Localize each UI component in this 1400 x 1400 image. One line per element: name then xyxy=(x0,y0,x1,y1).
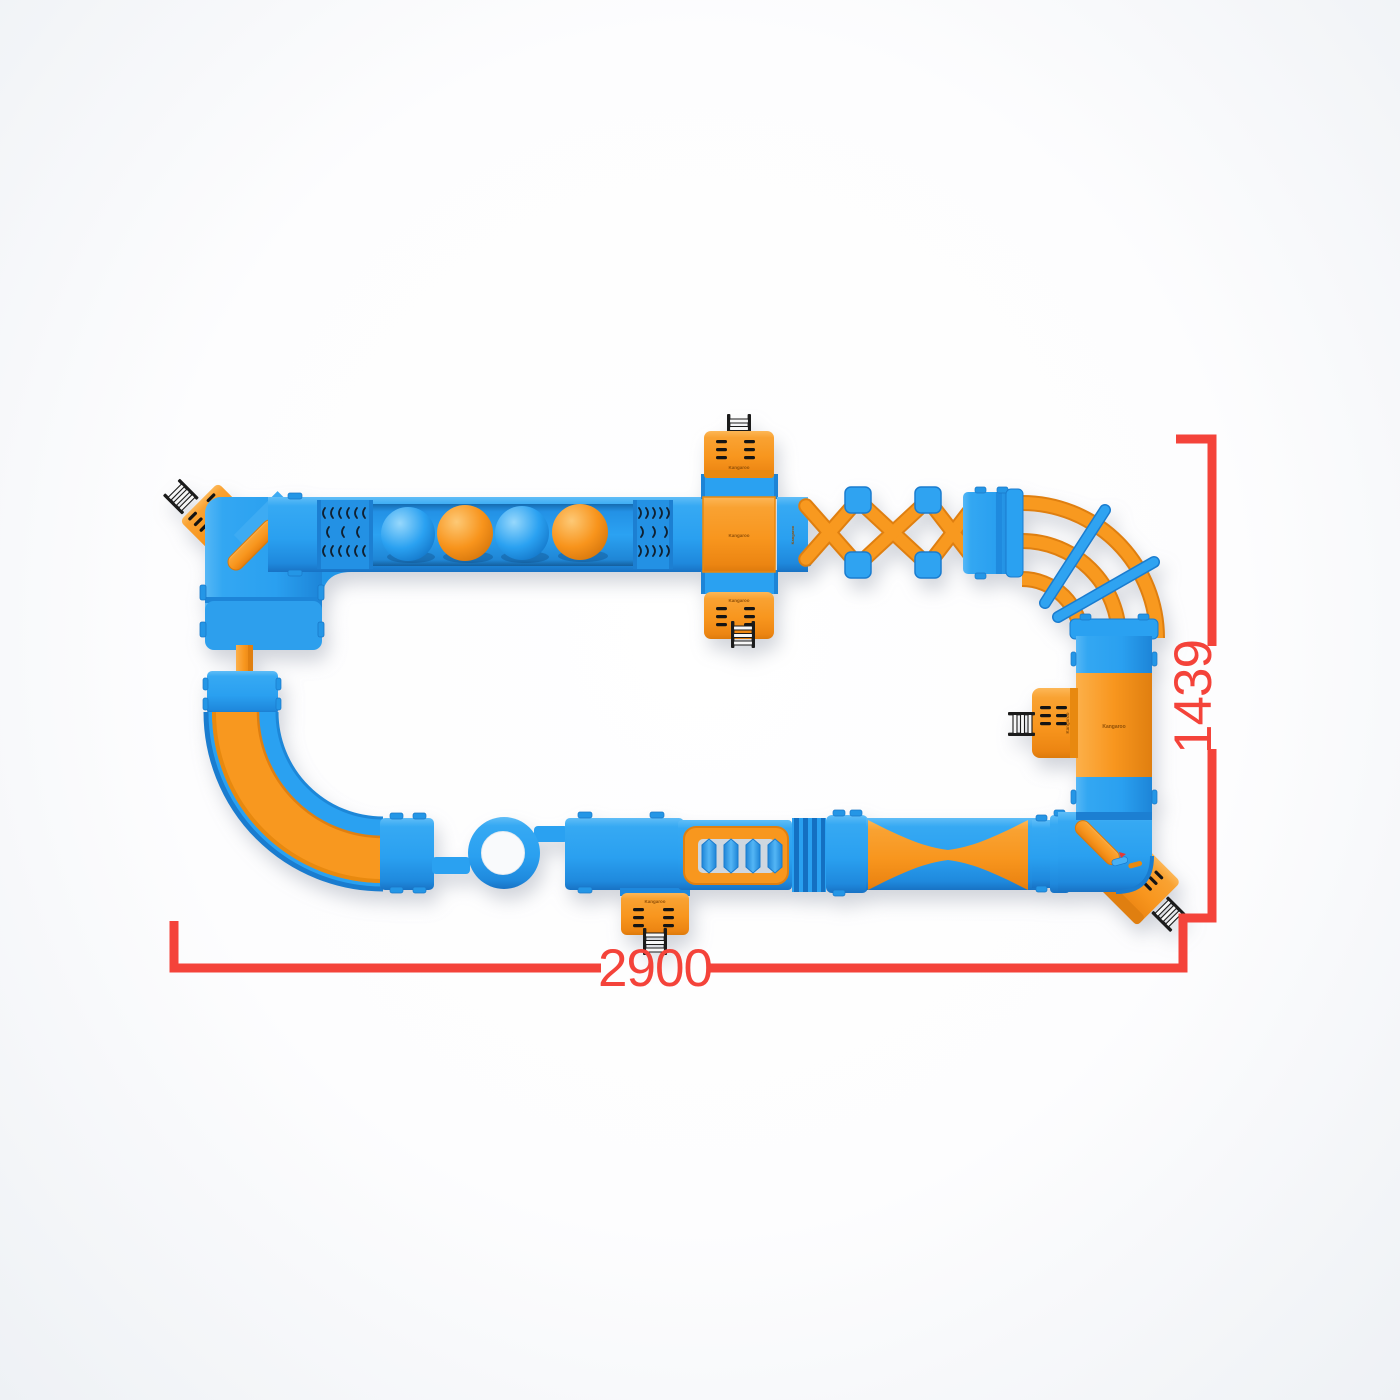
roller-icon xyxy=(746,839,760,873)
brand-logo: Kangaroo xyxy=(728,598,749,603)
height-dimension-label: 1439 xyxy=(1164,640,1223,754)
bottom-connector xyxy=(826,810,868,896)
anti-slip-marks-icon xyxy=(716,607,727,626)
bottom-left-block xyxy=(380,813,434,893)
ball-orange xyxy=(437,505,493,561)
anti-slip-marks-icon xyxy=(663,908,674,927)
roller-icon xyxy=(768,839,782,873)
tower-section-right: Kangaroo xyxy=(1070,614,1158,820)
step-pad xyxy=(915,552,941,578)
brand-logo: Kangaroo xyxy=(1065,712,1070,733)
step-pad xyxy=(845,552,871,578)
ribbed-connector xyxy=(792,818,826,892)
vent-panel-right xyxy=(633,500,673,569)
anti-slip-marks-icon xyxy=(633,908,644,927)
side-platform-right: Kangaroo xyxy=(1008,688,1078,758)
cross-platform: Kangaroo Kangaroo Kangaroo Kangaroo xyxy=(701,414,811,648)
diagram-svg: Kangaroo xyxy=(0,0,1400,1400)
step-pad xyxy=(915,487,941,513)
width-dimension-label: 2900 xyxy=(598,939,712,998)
brand-logo: Kangaroo xyxy=(1102,724,1125,730)
hourglass-runway xyxy=(866,818,1038,890)
anti-slip-marks-icon xyxy=(744,440,755,459)
left-connector-block xyxy=(203,671,281,715)
product-diagram-canvas: Kangaroo xyxy=(0,0,1400,1400)
ball-run xyxy=(373,504,633,566)
ring-section xyxy=(432,817,568,889)
brand-logo: Kangaroo xyxy=(644,899,665,904)
quarter-turn-slide-bottom-left xyxy=(206,712,383,889)
cross-tube xyxy=(806,500,972,565)
ball-blue xyxy=(495,506,549,560)
step-pad xyxy=(845,487,871,513)
ladder-icon xyxy=(1008,712,1035,736)
roller-bridge xyxy=(678,820,792,890)
roller-icon xyxy=(724,839,738,873)
vent-beam xyxy=(268,493,706,576)
x-lattice-bridge xyxy=(806,487,972,578)
brand-logo: Kangaroo xyxy=(728,465,749,470)
anti-slip-marks-icon xyxy=(716,440,727,459)
ball-orange xyxy=(552,504,608,560)
ball-blue xyxy=(381,507,435,561)
anti-slip-marks-icon xyxy=(1040,706,1051,725)
corner-elbow-bottom-right xyxy=(1058,812,1152,892)
roller-icon xyxy=(702,839,716,873)
obstacle-course: Kangaroo xyxy=(159,414,1201,955)
vent-panel-left xyxy=(317,500,373,569)
arc-end-cap xyxy=(1006,489,1023,577)
brand-logo: Kangaroo xyxy=(790,525,795,544)
ring-hole xyxy=(482,832,525,875)
brand-logo: Kangaroo xyxy=(728,533,749,538)
bottom-wide-block xyxy=(565,812,684,893)
